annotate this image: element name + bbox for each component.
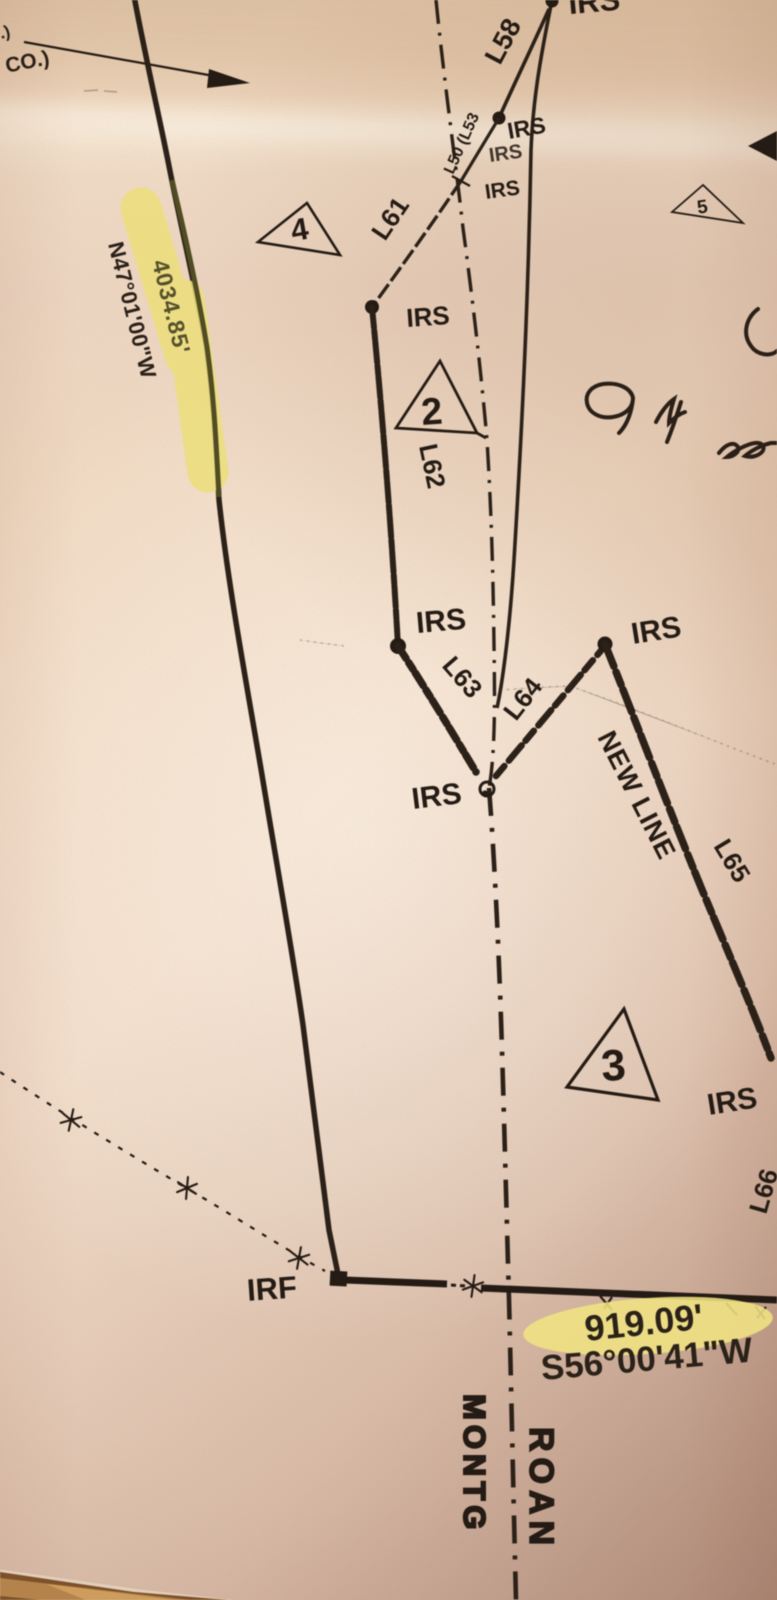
svg-text:4: 4 <box>288 211 312 249</box>
svg-text:IRS: IRS <box>629 610 684 650</box>
svg-text:L58: L58 <box>479 14 527 69</box>
svg-text:IRS: IRS <box>567 0 622 21</box>
svg-text:NEW LINE: NEW LINE <box>592 726 682 864</box>
svg-text:IRS: IRS <box>410 777 464 816</box>
svg-text:L50 (L53: L50 (L53 <box>441 110 483 176</box>
svg-text:IRS: IRS <box>488 141 524 167</box>
svg-text:5: 5 <box>696 196 710 218</box>
svg-text:L65: L65 <box>708 834 757 888</box>
svg-text:IRS: IRS <box>705 1081 760 1121</box>
svg-text:3: 3 <box>600 1040 628 1091</box>
svg-text:MONTG: MONTG <box>457 1394 492 1534</box>
svg-text:ROAN: ROAN <box>522 1427 560 1551</box>
svg-text:L62: L62 <box>413 441 452 491</box>
svg-text:2: 2 <box>420 391 444 434</box>
svg-text:IRS: IRS <box>415 603 468 640</box>
svg-text:IRS: IRS <box>505 112 547 144</box>
svg-text:IRS: IRS <box>483 176 521 204</box>
svg-text:L63: L63 <box>436 650 488 704</box>
svg-text:.): .) <box>0 22 12 43</box>
svg-text:L66: L66 <box>743 1165 777 1216</box>
svg-text:IRS: IRS <box>405 300 450 333</box>
svg-text:IRF: IRF <box>246 1269 298 1307</box>
svg-text:L61: L61 <box>365 191 415 245</box>
svg-text:CO.): CO.) <box>3 47 51 78</box>
